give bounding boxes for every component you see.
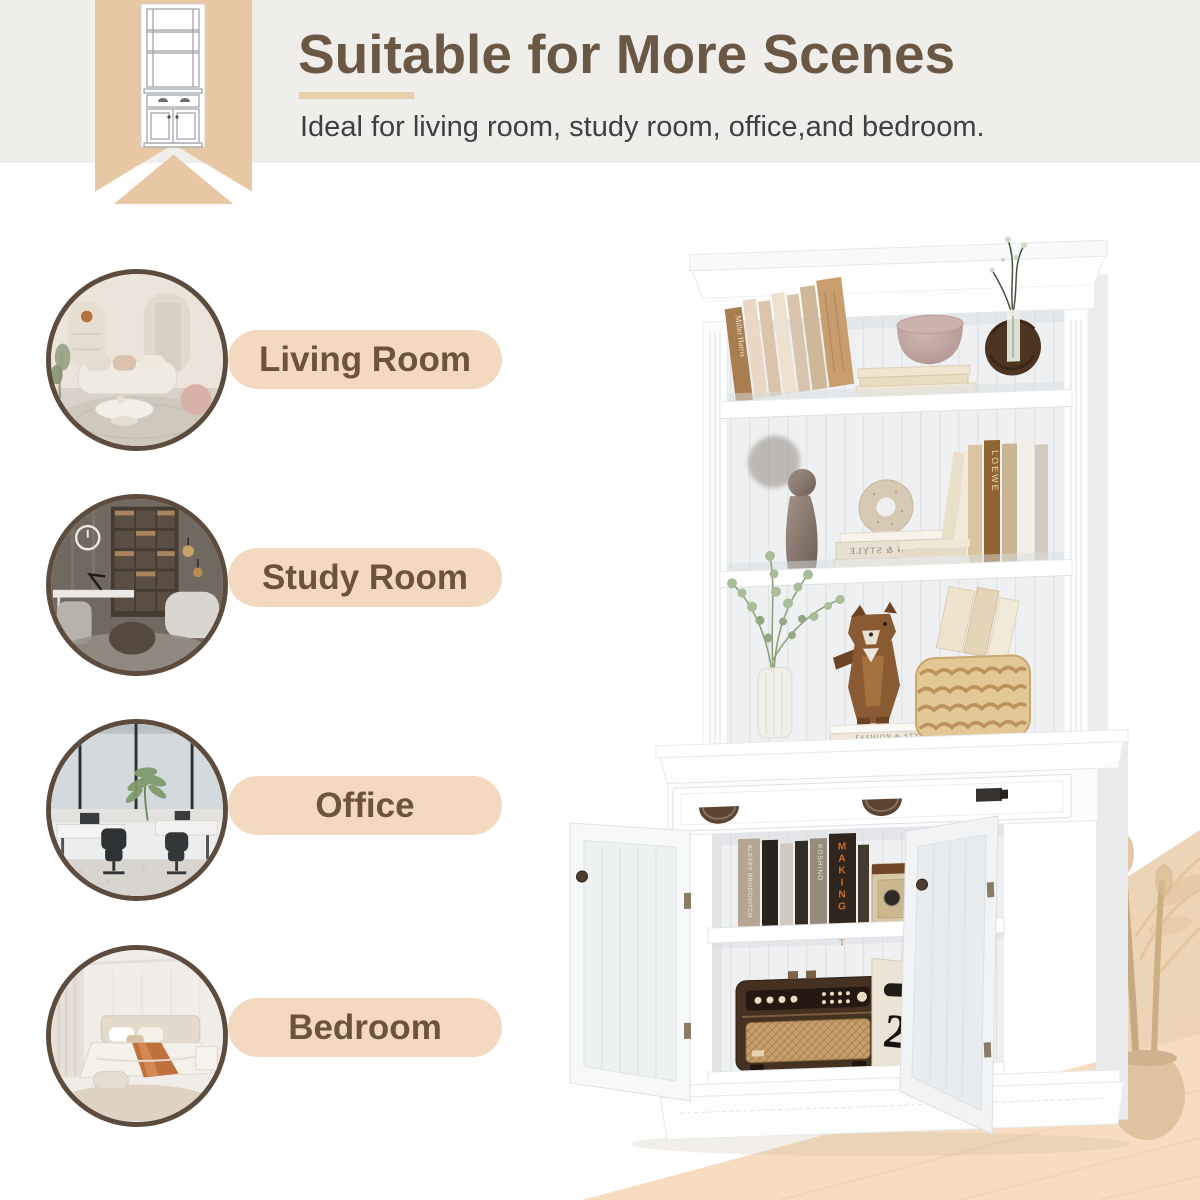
scene-label: Study Room [262,558,468,598]
study-room-photo [46,494,228,676]
cabinet-door-left [570,819,691,1105]
bookcase-outline-icon [140,3,206,154]
product-image-bookshelf: Miller Harris [540,190,1200,1200]
title-underline [299,92,414,99]
scene-label: Bedroom [288,1008,442,1048]
living-room-photo [46,269,228,451]
scene-pill-bedroom: Bedroom [228,998,502,1057]
page: Suitable for More Scenes Ideal for livin… [0,0,1200,1200]
retro-boombox [736,968,880,1071]
scene-label: Office [315,786,414,826]
cabinet-door-right [900,816,998,1137]
book-spine-text: ALEXEY BRODOVITCH [746,845,752,919]
bookshelf-cabinet: Miller Harris [570,232,1128,1148]
page-title: Suitable for More Scenes [298,22,955,86]
office-photo [46,719,228,901]
door-knob-right [917,879,928,890]
book-spine-text: KOSHINO [816,844,823,881]
page-subtitle: Ideal for living room, study room, offic… [300,111,985,144]
book-spine-text: LOEWE [990,450,1000,493]
door-knob-left [577,871,588,882]
bedroom-photo [46,945,228,1127]
scene-label: Living Room [259,340,471,380]
drawer-slide-hardware [976,788,1002,802]
ribbon-banner [95,0,252,206]
scene-pill-study-room: Study Room [228,548,502,607]
scene-pill-living-room: Living Room [228,330,502,389]
scene-pill-office: Office [228,776,502,835]
